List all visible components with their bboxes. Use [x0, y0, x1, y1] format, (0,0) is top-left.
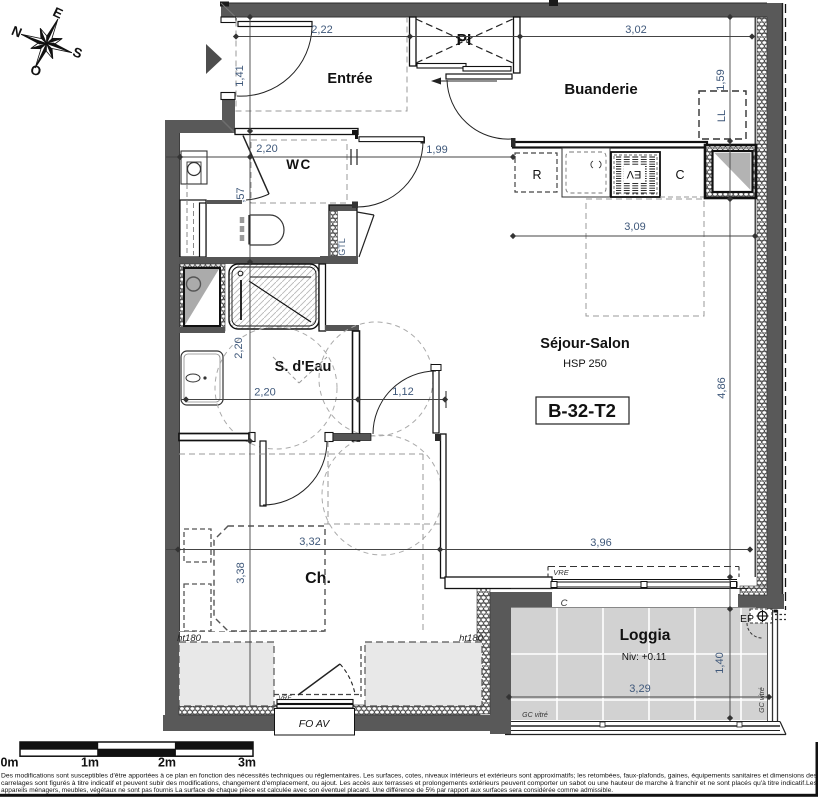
svg-text:2,20: 2,20 — [254, 387, 275, 399]
svg-text:,57: ,57 — [235, 187, 247, 202]
svg-text:Niv: +0.11: Niv: +0.11 — [622, 652, 667, 663]
svg-text:1,12: 1,12 — [392, 386, 413, 398]
svg-text:GTL: GTL — [337, 238, 347, 256]
svg-text:R: R — [532, 168, 541, 182]
svg-text:1,59: 1,59 — [715, 69, 727, 90]
svg-text:Loggia: Loggia — [620, 627, 671, 644]
svg-text:1m: 1m — [81, 756, 99, 770]
svg-text:3,02: 3,02 — [625, 24, 646, 36]
svg-text:WC: WC — [286, 157, 312, 172]
svg-text:Séjour-Salon: Séjour-Salon — [540, 336, 629, 352]
svg-text:FO AV: FO AV — [299, 718, 331, 730]
svg-text:4,86: 4,86 — [716, 377, 728, 398]
svg-text:2,22: 2,22 — [311, 24, 332, 36]
svg-text:1,99: 1,99 — [426, 144, 447, 156]
svg-text:B-32-T2: B-32-T2 — [548, 400, 616, 421]
svg-text:3,32: 3,32 — [299, 536, 320, 548]
svg-text:2,20: 2,20 — [256, 143, 277, 155]
svg-text:1,41: 1,41 — [234, 65, 246, 86]
svg-text:HSP 250: HSP 250 — [563, 358, 607, 370]
svg-text:EV: EV — [626, 168, 641, 180]
svg-text:3,29: 3,29 — [629, 683, 650, 695]
svg-text:Ch.: Ch. — [305, 570, 331, 587]
svg-text:Buanderie: Buanderie — [564, 81, 637, 98]
svg-text:VRE: VRE — [278, 695, 292, 702]
svg-text:LL: LL — [716, 110, 728, 122]
svg-text:Des modifications sont suscept: Des modifications sont susceptibles d'êt… — [1, 773, 817, 780]
svg-text:carrelages sont figurés à titr: carrelages sont figurés à titre indicati… — [1, 780, 817, 787]
svg-text:VRE: VRE — [553, 568, 569, 577]
svg-text:2m: 2m — [158, 756, 176, 770]
svg-text:3,38: 3,38 — [235, 562, 247, 583]
svg-text:2,20: 2,20 — [233, 337, 245, 358]
svg-text:GC vitré: GC vitré — [759, 687, 766, 713]
svg-text:ht180: ht180 — [177, 633, 201, 644]
svg-text:GC vitré: GC vitré — [522, 712, 548, 719]
svg-text:C: C — [675, 168, 684, 182]
svg-text:1,40: 1,40 — [714, 652, 726, 673]
svg-text:0m: 0m — [0, 756, 18, 770]
svg-text:3,09: 3,09 — [624, 221, 645, 233]
svg-text:3m: 3m — [238, 756, 256, 770]
svg-text:Entrée: Entrée — [327, 71, 372, 87]
svg-text:3,96: 3,96 — [590, 537, 611, 549]
svg-text:PI: PI — [457, 32, 472, 49]
svg-text:appareils ménagers, meubles, v: appareils ménagers, meubles, végétaux ne… — [1, 787, 613, 794]
svg-text:ht180: ht180 — [459, 633, 483, 644]
